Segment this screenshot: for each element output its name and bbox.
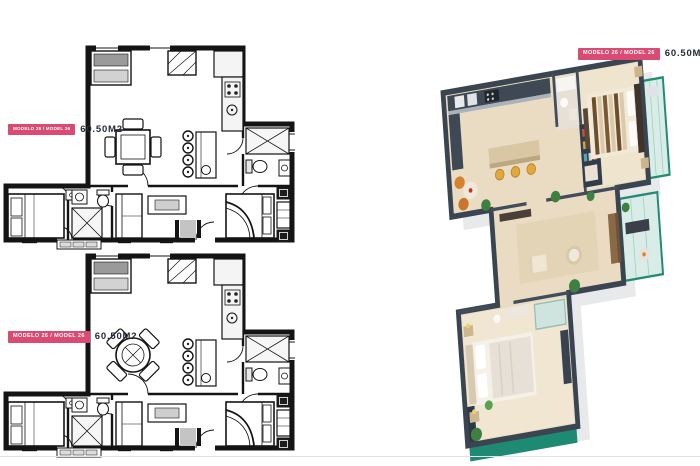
bottom-divider: [0, 456, 700, 457]
render-unit: [443, 55, 687, 462]
model-badge-bottom: MODELO 26 / MODEL 26 60.50M2: [8, 331, 137, 343]
area-label-bottom: 60.50M2: [95, 331, 138, 342]
model-label-render: MODELO 26 / MODEL 26: [578, 48, 660, 60]
model-badge-render: MODELO 26 / MODEL 26 60.50M2: [578, 48, 700, 60]
render-living-balcony: [619, 192, 663, 281]
model-badge-top: MODELO 26 / MODEL 26 60.50M2: [8, 124, 123, 135]
model-label-bottom: MODELO 26 / MODEL 26: [8, 331, 90, 343]
brochure-canvas: MODELO 26 / MODEL 26 60.50M2 MODELO 26 /…: [0, 0, 700, 466]
render-3d-isometric: [0, 0, 700, 466]
area-label-top: 60.50M2: [80, 124, 123, 135]
model-label-top: MODELO 26 / MODEL 26: [8, 124, 75, 135]
area-label-render: 60.50M2: [665, 48, 700, 59]
